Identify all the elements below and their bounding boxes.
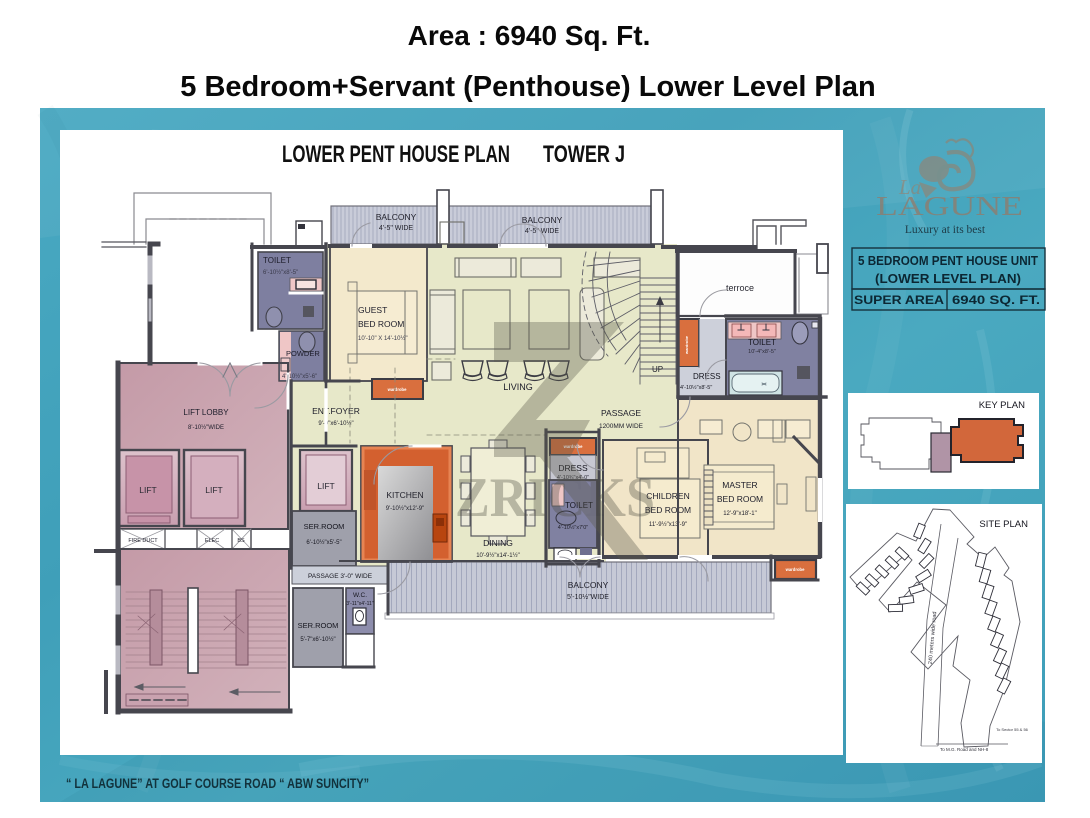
svg-text:9'-0"x6'-10½": 9'-0"x6'-10½" — [318, 420, 353, 427]
svg-text:BALCONY: BALCONY — [376, 212, 417, 222]
svg-text:UP: UP — [652, 365, 663, 374]
svg-text:10'-10" X 14'-10½": 10'-10" X 14'-10½" — [358, 335, 408, 342]
svg-text:LIFT: LIFT — [139, 485, 156, 495]
svg-text:Luxury at its best: Luxury at its best — [905, 224, 986, 236]
svg-text:5'-7"x6'-10½": 5'-7"x6'-10½" — [300, 636, 335, 643]
svg-text:Area : 6940 Sq. Ft.: Area : 6940 Sq. Ft. — [408, 20, 651, 51]
svg-text:10'-9½"x14'-1½": 10'-9½"x14'-1½" — [476, 552, 520, 559]
svg-text:PASSAGE 3'-0" WIDE: PASSAGE 3'-0" WIDE — [308, 573, 373, 580]
svg-text:BED ROOM: BED ROOM — [358, 319, 404, 329]
svg-text:LIVING: LIVING — [503, 382, 533, 392]
svg-text:LAGUNE: LAGUNE — [876, 191, 1023, 221]
svg-text:3'-11"x4'-11": 3'-11"x4'-11" — [346, 601, 373, 607]
svg-text:LIFT: LIFT — [205, 485, 222, 495]
svg-text:terroce: terroce — [726, 283, 754, 293]
svg-text:SITE PLAN: SITE PLAN — [979, 519, 1028, 530]
svg-text:wardrobe: wardrobe — [684, 335, 689, 355]
svg-text:LOWER PENT HOUSE PLAN: LOWER PENT HOUSE PLAN — [282, 141, 510, 168]
svg-text:POWDER: POWDER — [286, 349, 320, 358]
svg-text:10'-4"x8'-5": 10'-4"x8'-5" — [748, 349, 776, 355]
svg-text:FIRE DUCT: FIRE DUCT — [128, 538, 158, 544]
svg-text:6940 SQ. FT.: 6940 SQ. FT. — [952, 293, 1040, 307]
svg-text:9'-10½"x12'-9": 9'-10½"x12'-9" — [386, 505, 425, 512]
svg-text:ENT.FOYER: ENT.FOYER — [312, 406, 360, 416]
svg-text:TOILET: TOILET — [263, 256, 291, 265]
svg-text:“ LA LAGUNE” AT GOLF COURSE RO: “ LA LAGUNE” AT GOLF COURSE ROAD “ ABW S… — [66, 776, 369, 791]
svg-text:wardrobe: wardrobe — [785, 567, 806, 572]
svg-text:DINING: DINING — [483, 538, 513, 548]
svg-text:(LOWER LEVEL PLAN): (LOWER LEVEL PLAN) — [875, 272, 1021, 286]
svg-text:BS: BS — [237, 538, 245, 544]
svg-text:BED ROOM: BED ROOM — [717, 494, 763, 504]
svg-text:TOILET: TOILET — [748, 338, 776, 347]
svg-text:KEY PLAN: KEY PLAN — [979, 400, 1025, 411]
svg-text:W.C.: W.C. — [353, 592, 367, 599]
svg-text:MASTER: MASTER — [722, 480, 757, 490]
svg-text:1200MM WIDE: 1200MM WIDE — [599, 423, 644, 430]
svg-text:LIFT: LIFT — [317, 481, 334, 491]
svg-text:SUPER AREA: SUPER AREA — [854, 293, 944, 307]
svg-text:4'-10½"x8'-5": 4'-10½"x8'-5" — [680, 384, 712, 391]
svg-text:12'-9"x18'-1": 12'-9"x18'-1" — [723, 511, 757, 517]
svg-text:To M.G. Road and NH-8: To M.G. Road and NH-8 — [940, 747, 989, 752]
svg-text:BALCONY: BALCONY — [568, 580, 609, 590]
svg-text:ZRICKS: ZRICKS — [455, 467, 655, 529]
svg-text:KITCHEN: KITCHEN — [386, 490, 423, 500]
svg-text:BALCONY: BALCONY — [522, 215, 563, 225]
svg-text:SER.ROOM: SER.ROOM — [304, 522, 345, 531]
svg-text:GUEST: GUEST — [358, 305, 387, 315]
svg-text:5 Bedroom+Servant (Penthouse): 5 Bedroom+Servant (Penthouse) Lower Leve… — [180, 71, 875, 103]
svg-text:ELEC: ELEC — [205, 538, 219, 544]
svg-text:To Sector 55 & 56: To Sector 55 & 56 — [996, 727, 1029, 732]
svg-text:LIFT LOBBY: LIFT LOBBY — [183, 408, 229, 417]
svg-text:PASSAGE: PASSAGE — [601, 408, 641, 418]
svg-text:5 BEDROOM PENT HOUSE UNIT: 5 BEDROOM PENT HOUSE UNIT — [858, 254, 1038, 268]
svg-text:TOWER J: TOWER J — [543, 141, 625, 168]
svg-text:6'-10½"x8'-5": 6'-10½"x8'-5" — [263, 269, 298, 276]
svg-text:8'-10½"WIDE: 8'-10½"WIDE — [188, 424, 224, 431]
svg-text:wardrobe: wardrobe — [387, 387, 408, 392]
svg-text:5'-10½"WIDE: 5'-10½"WIDE — [567, 593, 609, 601]
svg-text:4'-5" WIDE: 4'-5" WIDE — [379, 225, 413, 232]
svg-text:SER.ROOM: SER.ROOM — [298, 621, 339, 630]
svg-text:6'-10½"x5'-5": 6'-10½"x5'-5" — [306, 539, 341, 546]
